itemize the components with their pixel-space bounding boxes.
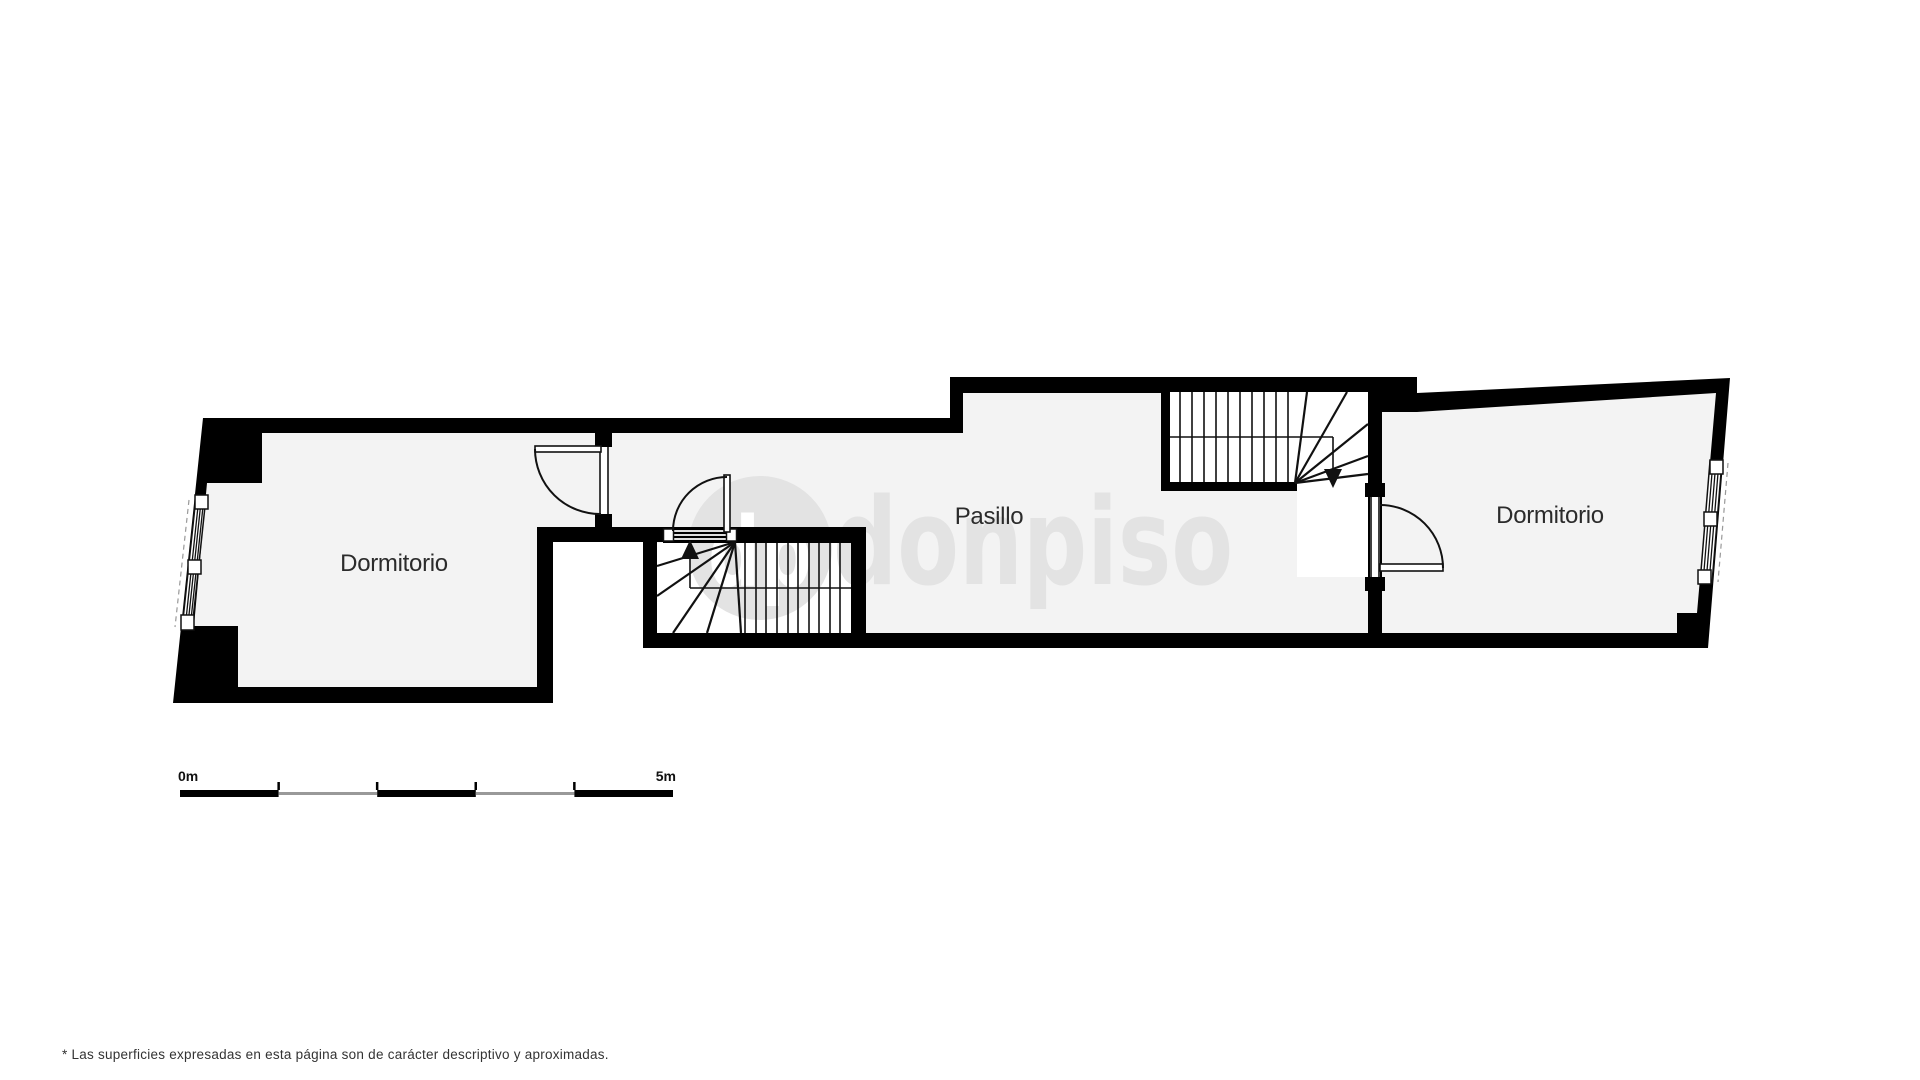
scale-start-label: 0m (178, 768, 198, 784)
watermark: dp donpiso (688, 474, 1233, 620)
corridor-door-stub-bottom (595, 514, 612, 528)
right-window-sill-bottom (1698, 570, 1711, 584)
scale-end-label: 5m (656, 768, 676, 784)
corridor-door-leaf (535, 446, 601, 452)
scale-segment-2 (279, 792, 378, 795)
right-bedroom-door-leaf (1380, 564, 1443, 571)
right-window-sill-mid (1704, 512, 1717, 526)
floor-plan-page: dp donpiso (0, 0, 1920, 1080)
left-window-sill-mid (188, 560, 201, 574)
left-window-sill-bottom (181, 615, 194, 630)
scale-bar: 0m 5m (178, 768, 676, 797)
upper-stair-bottom-wall (1161, 482, 1297, 491)
lower-stair-top-wall (737, 527, 866, 543)
threshold-left-jamb (664, 529, 674, 541)
watermark-brand-text: donpiso (833, 474, 1233, 613)
corridor-door-stub-top (595, 433, 612, 447)
scale-segment-4 (476, 792, 575, 795)
hallway-label: Pasillo (955, 503, 1024, 530)
scale-segment-1 (180, 790, 279, 797)
disclaimer-text: * Las superficies expresadas en esta pág… (62, 1047, 609, 1062)
scale-segment-3 (377, 790, 476, 797)
right-bedroom-label: Dormitorio (1496, 502, 1604, 529)
right-window-sill-top (1710, 460, 1723, 474)
scale-tick-4 (573, 782, 576, 790)
left-window-sill-top (195, 495, 208, 509)
hallway-bedroom-partition-upper (1368, 390, 1382, 497)
lower-stair-left-wall (643, 527, 657, 648)
top-wall-step-block (1382, 390, 1417, 412)
left-bedroom-right-wall (537, 527, 553, 703)
upper-stair-left-wall (1161, 390, 1170, 491)
door-stub-top (1365, 483, 1385, 497)
scale-segment-5 (574, 790, 673, 797)
scale-tick-1 (277, 782, 280, 790)
stair-door-leaf (724, 475, 730, 532)
scale-tick-2 (376, 782, 379, 790)
scale-tick-3 (475, 782, 478, 790)
lower-stair-right-wall (851, 527, 866, 648)
floor-plan-drawing: dp donpiso (0, 0, 1920, 1080)
left-bedroom-label: Dormitorio (340, 550, 448, 577)
door-stub-bottom (1365, 577, 1385, 591)
